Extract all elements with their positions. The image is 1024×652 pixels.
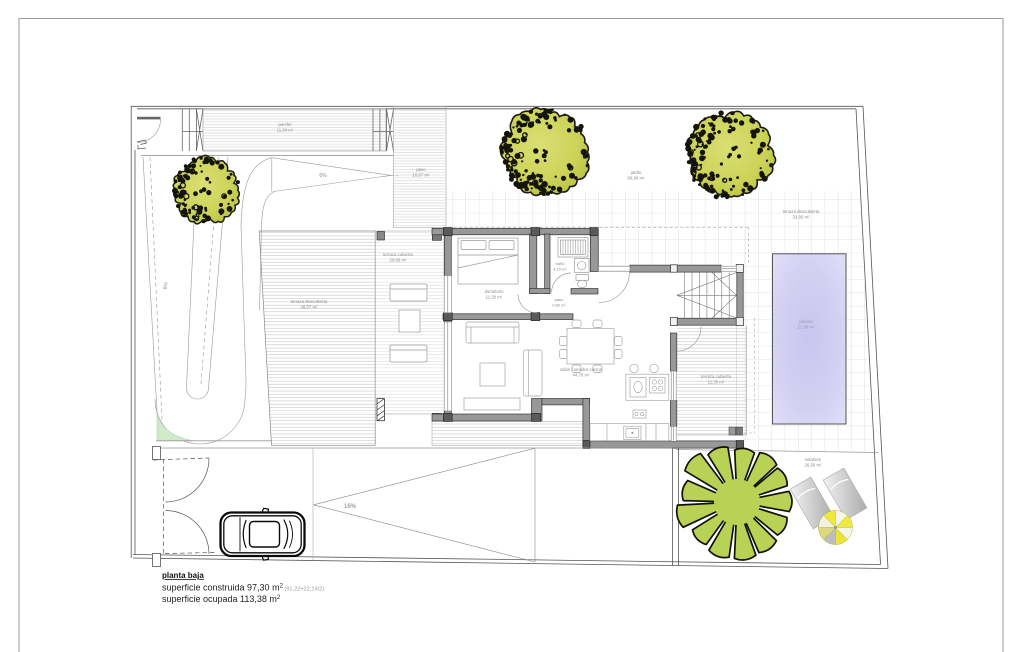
svg-text:baño: baño (556, 261, 566, 266)
svg-text:planta baja: planta baja (162, 571, 204, 580)
svg-text:11,20 m²: 11,20 m² (486, 295, 503, 300)
svg-text:21,00 m²: 21,00 m² (798, 325, 816, 330)
svg-text:10,67 m²: 10,67 m² (413, 173, 431, 178)
svg-text:6%: 6% (163, 281, 170, 289)
svg-text:solarium: solarium (805, 457, 822, 462)
svg-text:2,80 m²: 2,80 m² (552, 303, 566, 308)
svg-text:26,56 m²: 26,56 m² (805, 463, 823, 468)
svg-text:terraza cubierta: terraza cubierta (383, 252, 413, 257)
svg-text:16%: 16% (344, 504, 357, 510)
svg-text:terraza descubierta: terraza descubierta (783, 209, 820, 214)
svg-text:jardín: jardín (630, 170, 642, 175)
svg-text:33,95 m²: 33,95 m² (793, 215, 811, 220)
svg-text:11,30 m²: 11,30 m² (708, 380, 725, 385)
svg-text:44,76 m²: 44,76 m² (573, 373, 591, 378)
svg-text:49,07 m²: 49,07 m² (301, 305, 319, 310)
svg-text:paso: paso (416, 167, 426, 172)
svg-text:paso: paso (555, 297, 564, 302)
svg-text:20,66 m²: 20,66 m² (390, 258, 408, 263)
svg-text:porche: porche (278, 122, 292, 127)
svg-text:terraza cubierta: terraza cubierta (701, 374, 731, 379)
svg-text:terraza descubierta: terraza descubierta (291, 299, 328, 304)
svg-text:superficie ocupada 113,38 m2: superficie ocupada 113,38 m2 (162, 594, 281, 604)
svg-text:56,86 m²: 56,86 m² (628, 176, 646, 181)
svg-text:salón comedor-cocina: salón comedor-cocina (560, 367, 603, 372)
svg-text:6%: 6% (319, 173, 327, 179)
svg-text:4,15 m²: 4,15 m² (553, 267, 567, 272)
svg-text:piscina: piscina (799, 319, 813, 324)
svg-text:dormitorio: dormitorio (484, 289, 504, 294)
svg-text:11,84 m²: 11,84 m² (277, 128, 294, 133)
